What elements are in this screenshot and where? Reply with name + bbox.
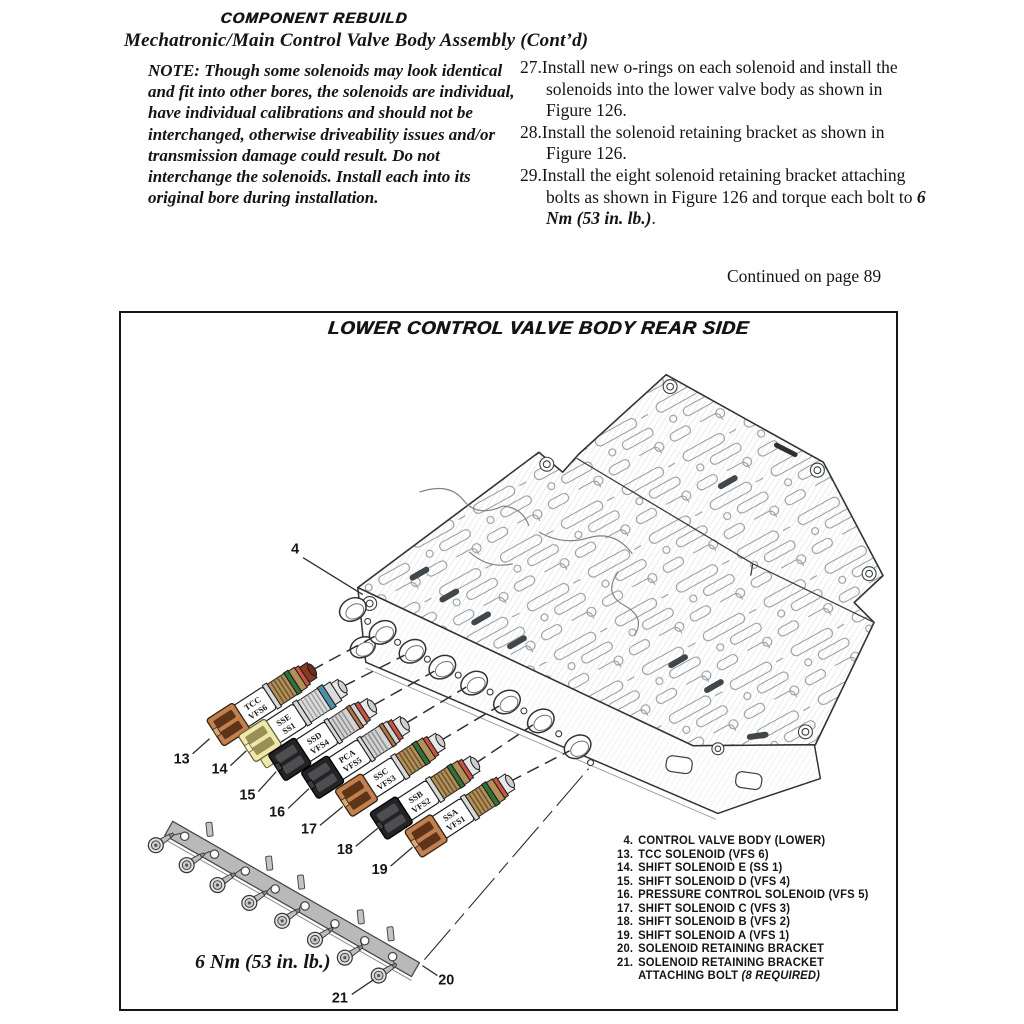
callout-20-leader	[422, 966, 437, 976]
callout-20: 20	[438, 973, 454, 989]
legend-row: 19.SHIFT SOLENOID A (VFS 1)	[608, 929, 869, 943]
torque-spec: 6 Nm (53 in. lb.)	[195, 951, 331, 974]
callout-17: 17	[301, 821, 317, 837]
callout-19: 19	[372, 862, 388, 878]
callout-21-leader	[352, 980, 374, 995]
step-item: 29.Install the eight solenoid retaining …	[520, 165, 926, 230]
callout-13: 13	[174, 752, 190, 768]
legend-row: 15.SHIFT SOLENOID D (VFS 4)	[608, 875, 869, 889]
legend-row: 4.CONTROL VALVE BODY (LOWER)	[608, 834, 869, 848]
callout-18: 18	[337, 842, 353, 858]
page-title: Mechatronic/Main Control Valve Body Asse…	[124, 30, 588, 52]
legend-row: 18.SHIFT SOLENOID B (VFS 2)	[608, 915, 869, 929]
callout-15: 15	[239, 787, 255, 803]
figure-title: LOWER CONTROL VALVE BODY REAR SIDE	[120, 317, 897, 339]
manual-page: COMPONENT REBUILD Mechatronic/Main Contr…	[0, 0, 1024, 1024]
legend-row: 17.SHIFT SOLENOID C (VFS 3)	[608, 902, 869, 916]
callout-21: 21	[332, 990, 348, 1006]
figure-legend: 4.CONTROL VALVE BODY (LOWER) 13.TCC SOLE…	[608, 834, 869, 983]
procedure-steps: 27.Install new o-rings on each solenoid …	[520, 57, 926, 230]
legend-row: 14.SHIFT SOLENOID E (SS 1)	[608, 861, 869, 875]
callout-4: 4	[291, 542, 299, 558]
callout-14: 14	[211, 762, 227, 778]
page-kicker: COMPONENT REBUILD	[87, 10, 541, 27]
legend-row: 20.SOLENOID RETAINING BRACKET	[608, 942, 869, 956]
continued-note: Continued on page 89	[727, 266, 881, 287]
callout-4-leader	[303, 558, 363, 595]
legend-row: ATTACHING BOLT (8 REQUIRED)	[608, 969, 869, 983]
figure-box: 4 TCC VFS6	[119, 311, 898, 1011]
legend-row: 16.PRESSURE CONTROL SOLENOID (VFS 5)	[608, 888, 869, 902]
step-item: 27.Install new o-rings on each solenoid …	[520, 57, 926, 122]
note-paragraph: NOTE: Though some solenoids may look ide…	[148, 60, 526, 208]
step-item: 28.Install the solenoid retaining bracke…	[520, 122, 926, 165]
legend-row: 21.SOLENOID RETAINING BRACKET	[608, 956, 869, 970]
callout-16: 16	[269, 804, 285, 820]
legend-row: 13.TCC SOLENOID (VFS 6)	[608, 848, 869, 862]
